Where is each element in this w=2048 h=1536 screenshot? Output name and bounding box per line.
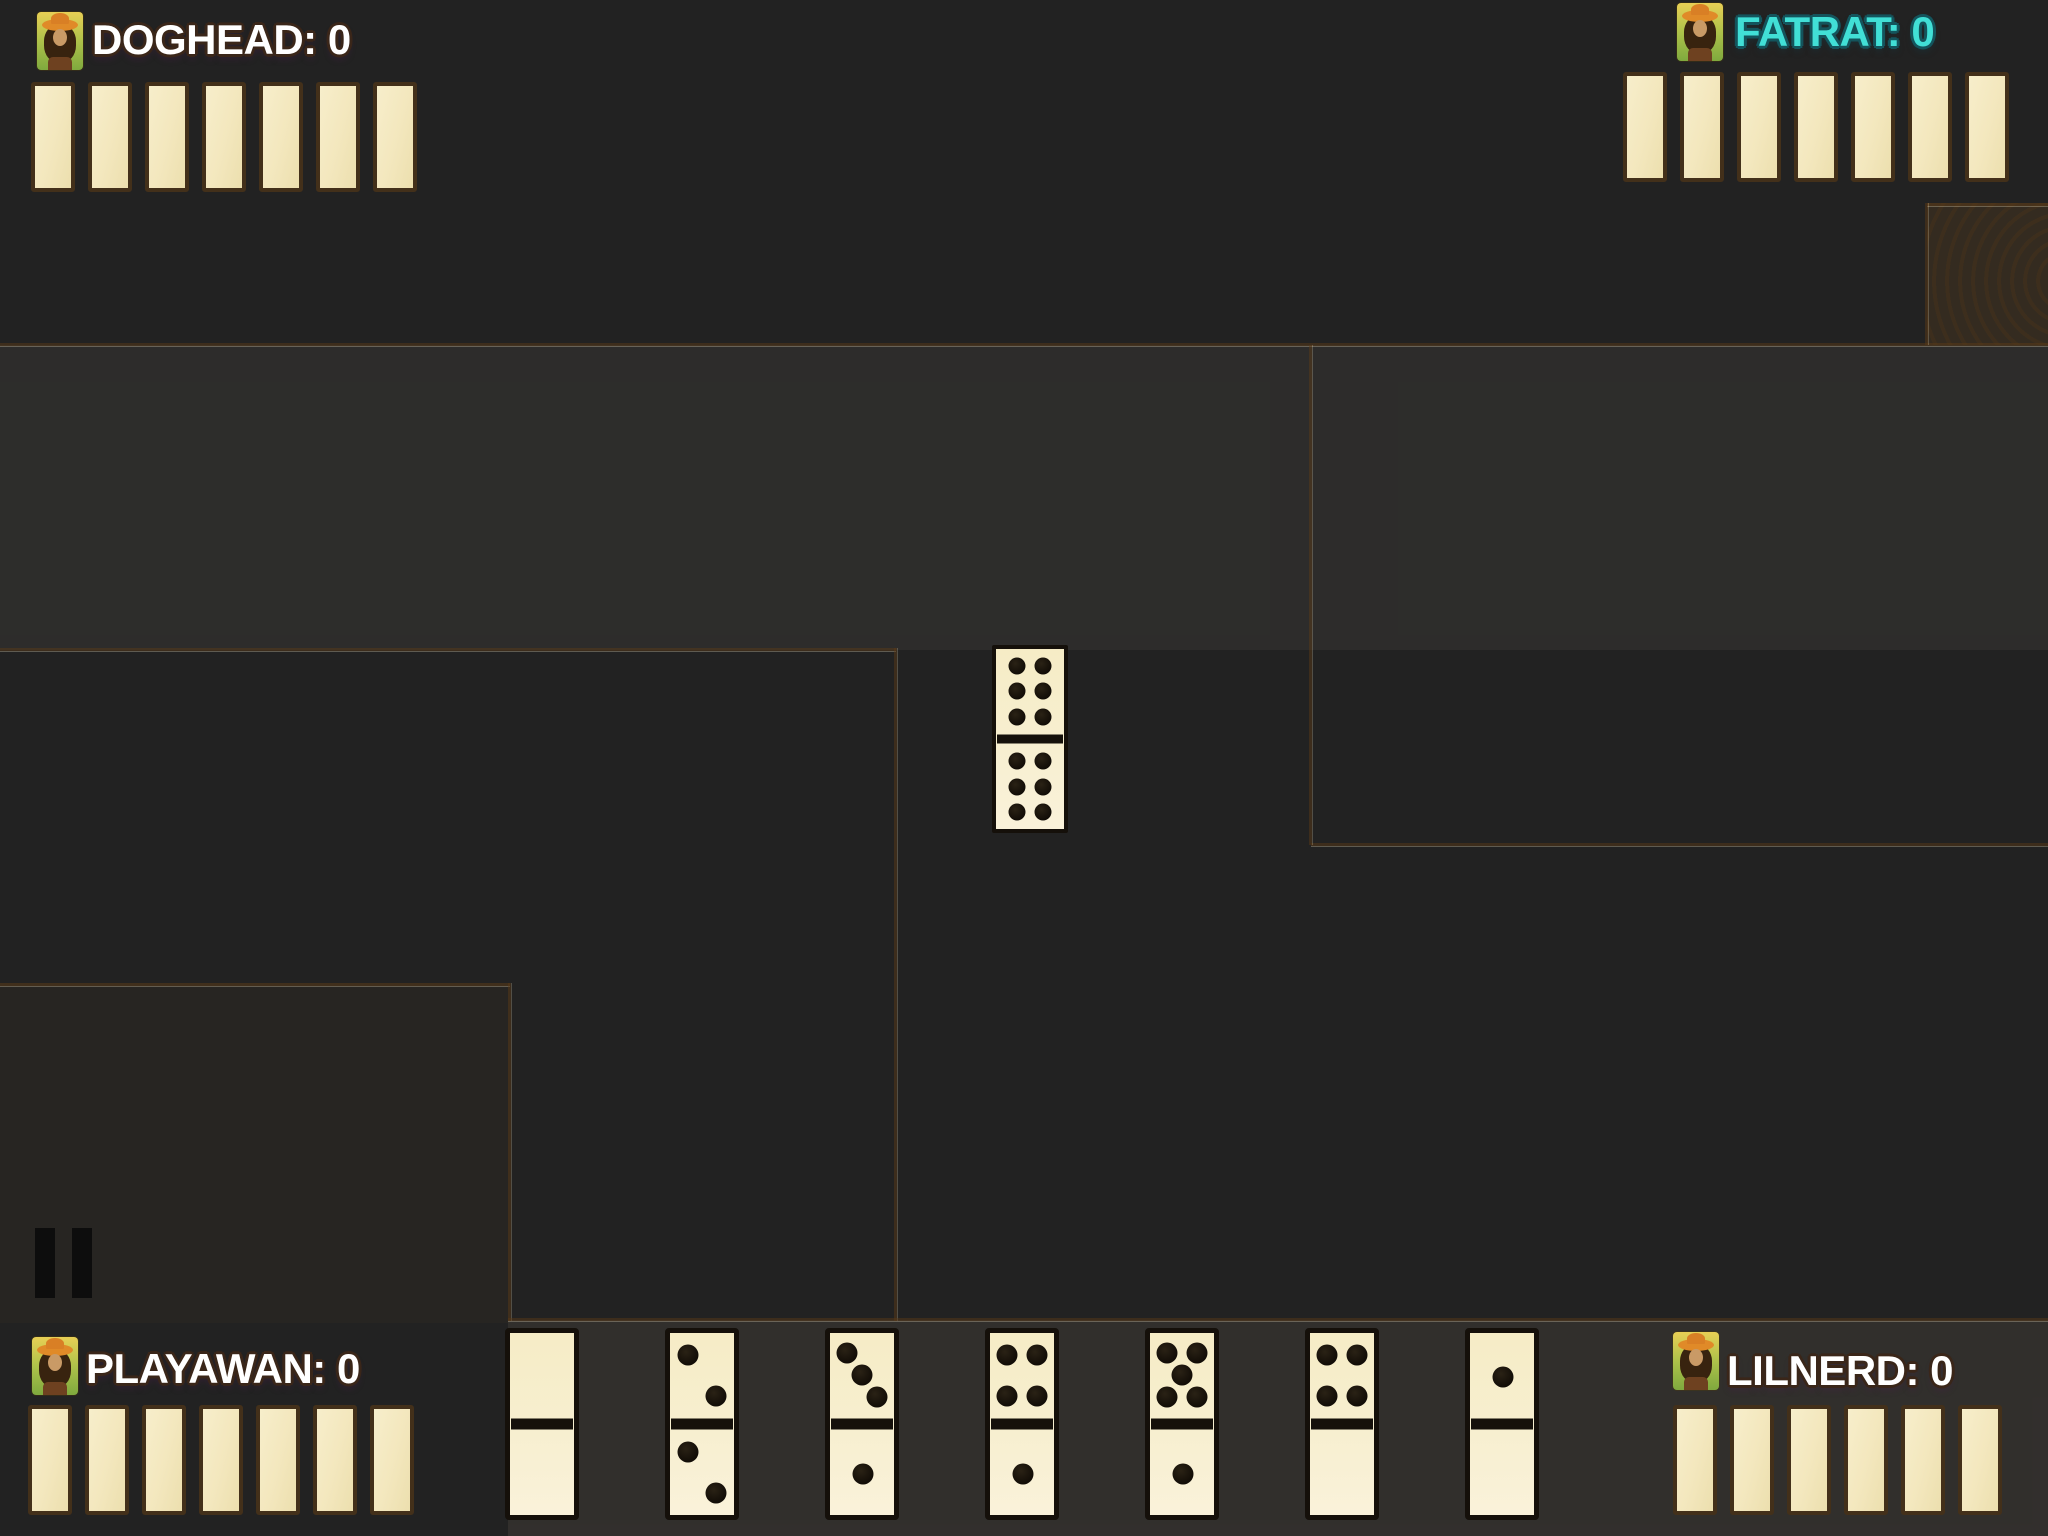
facedown-tile xyxy=(145,82,189,192)
domino-half-bottom-1 xyxy=(830,1431,894,1516)
pip xyxy=(1009,778,1026,795)
plank-seam xyxy=(0,648,896,651)
player-hand xyxy=(505,1328,1539,1520)
facedown-tile xyxy=(1851,72,1895,182)
pip xyxy=(1034,657,1051,674)
domino-half-bottom-2 xyxy=(670,1431,734,1516)
pip xyxy=(1317,1344,1338,1365)
facedown-tile xyxy=(1673,1405,1717,1515)
pip xyxy=(677,1344,698,1365)
domino-half-top-2 xyxy=(670,1333,734,1418)
pip xyxy=(1009,804,1026,821)
pip xyxy=(1187,1387,1208,1408)
facedown-tile xyxy=(313,1405,357,1515)
facedown-tile xyxy=(28,1405,72,1515)
pip xyxy=(853,1464,874,1485)
facedown-tile xyxy=(370,1405,414,1515)
domino-half-top-0 xyxy=(510,1333,574,1418)
tile-row-playawan xyxy=(28,1405,414,1515)
avatar-body xyxy=(43,1382,67,1395)
player-score-fatrat: FATRAT: 0 xyxy=(1735,8,1934,56)
pause-button[interactable] xyxy=(35,1228,92,1298)
avatar-face xyxy=(1689,1349,1703,1366)
hand-domino-3-1[interactable] xyxy=(825,1328,899,1520)
pip xyxy=(1013,1464,1034,1485)
played-domino-6-6 xyxy=(992,645,1068,833)
pip xyxy=(1317,1385,1338,1406)
hand-domino-4-0[interactable] xyxy=(1305,1328,1379,1520)
pip xyxy=(1034,753,1051,770)
player-score-doghead: DOGHEAD: 0 xyxy=(92,16,351,64)
hand-domino-5-1[interactable] xyxy=(1145,1328,1219,1520)
facedown-tile xyxy=(259,82,303,192)
plank-seam xyxy=(508,1318,2048,1321)
tile-row-fatrat xyxy=(1623,72,2009,182)
plank-seam xyxy=(894,648,897,1321)
domino-half-top-5 xyxy=(1150,1333,1214,1418)
avatar-hat-icon xyxy=(46,1338,64,1349)
facedown-tile xyxy=(1958,1405,2002,1515)
domino-divider xyxy=(1311,1419,1373,1430)
facedown-tile xyxy=(373,82,417,192)
pip xyxy=(706,1385,727,1406)
domino-half-top-6 xyxy=(996,649,1064,734)
avatar-face xyxy=(1693,20,1707,37)
player-avatar-fatrat xyxy=(1677,3,1723,61)
facedown-tile xyxy=(142,1405,186,1515)
pip xyxy=(1173,1464,1194,1485)
facedown-tile xyxy=(256,1405,300,1515)
avatar-hat-icon xyxy=(51,13,69,24)
game-table: DOGHEAD: 0 FATRAT: 0 PLAYAWAN: 0 LILNERD… xyxy=(0,0,2048,1536)
pip xyxy=(997,1385,1018,1406)
avatar-body xyxy=(48,57,72,70)
player-avatar-lilnerd xyxy=(1673,1332,1719,1390)
pip xyxy=(1009,753,1026,770)
facedown-tile xyxy=(1623,72,1667,182)
pip xyxy=(706,1483,727,1504)
player-score-lilnerd: LILNERD: 0 xyxy=(1727,1347,1953,1395)
facedown-tile xyxy=(1908,72,1952,182)
domino-half-top-1 xyxy=(1470,1333,1534,1418)
facedown-tile xyxy=(1737,72,1781,182)
pip xyxy=(1346,1385,1367,1406)
domino-divider xyxy=(1151,1419,1213,1430)
domino-divider xyxy=(1471,1419,1533,1430)
domino-half-bottom-0 xyxy=(1470,1431,1534,1516)
pip xyxy=(1346,1344,1367,1365)
facedown-tile xyxy=(1844,1405,1888,1515)
pip xyxy=(866,1387,887,1408)
avatar-face xyxy=(53,29,67,46)
player-avatar-doghead xyxy=(37,12,83,70)
pause-icon xyxy=(72,1228,92,1298)
pause-icon xyxy=(35,1228,55,1298)
player-score-playawan: PLAYAWAN: 0 xyxy=(86,1345,360,1393)
hand-domino-2-2[interactable] xyxy=(665,1328,739,1520)
domino-divider xyxy=(831,1419,893,1430)
pip xyxy=(1187,1343,1208,1364)
avatar-body xyxy=(1688,48,1712,61)
plank-seam xyxy=(1927,203,2048,206)
avatar-hat-icon xyxy=(1687,1333,1705,1344)
domino-half-bottom-0 xyxy=(510,1431,574,1516)
facedown-tile xyxy=(1730,1405,1774,1515)
facedown-tile xyxy=(316,82,360,192)
facedown-tile xyxy=(199,1405,243,1515)
facedown-tile xyxy=(202,82,246,192)
domino-half-top-3 xyxy=(830,1333,894,1418)
plank-seam xyxy=(0,983,510,986)
board-played-dominoes xyxy=(992,645,1068,833)
domino-half-top-4 xyxy=(990,1333,1054,1418)
domino-half-bottom-0 xyxy=(1310,1431,1374,1516)
facedown-tile xyxy=(85,1405,129,1515)
pip xyxy=(1009,708,1026,725)
pip xyxy=(1034,804,1051,821)
avatar-hat-icon xyxy=(1691,4,1709,15)
pip xyxy=(852,1365,873,1386)
pip xyxy=(677,1442,698,1463)
facedown-tile xyxy=(1794,72,1838,182)
pip xyxy=(1172,1365,1193,1386)
facedown-tile xyxy=(1965,72,2009,182)
hand-domino-0-0[interactable] xyxy=(505,1328,579,1520)
domino-divider xyxy=(671,1419,733,1430)
pip xyxy=(1034,778,1051,795)
plank-seam xyxy=(1309,345,1312,845)
domino-half-bottom-1 xyxy=(1150,1431,1214,1516)
facedown-tile xyxy=(88,82,132,192)
avatar-face xyxy=(48,1354,62,1371)
facedown-tile xyxy=(1787,1405,1831,1515)
domino-half-bottom-6 xyxy=(996,745,1064,830)
pip xyxy=(1009,683,1026,700)
tile-row-doghead xyxy=(31,82,417,192)
plank-seam xyxy=(508,983,511,1321)
hand-domino-4-1[interactable] xyxy=(985,1328,1059,1520)
plank-seam xyxy=(1925,203,1928,345)
plank-seam xyxy=(1311,843,2048,846)
pip xyxy=(1026,1344,1047,1365)
avatar-body xyxy=(1684,1377,1708,1390)
domino-half-top-4 xyxy=(1310,1333,1374,1418)
player-avatar-playawan xyxy=(32,1337,78,1395)
domino-divider xyxy=(511,1419,573,1430)
pip xyxy=(1156,1343,1177,1364)
pip xyxy=(1009,657,1026,674)
pip xyxy=(1034,708,1051,725)
facedown-tile xyxy=(1680,72,1724,182)
pip xyxy=(997,1344,1018,1365)
plank-seam xyxy=(0,343,2048,346)
facedown-tile xyxy=(1901,1405,1945,1515)
domino-divider xyxy=(991,1419,1053,1430)
domino-divider xyxy=(997,735,1063,744)
pip xyxy=(1493,1366,1514,1387)
pip xyxy=(1034,683,1051,700)
tile-row-lilnerd xyxy=(1673,1405,2002,1515)
pip xyxy=(1026,1385,1047,1406)
facedown-tile xyxy=(31,82,75,192)
hand-domino-1-0[interactable] xyxy=(1465,1328,1539,1520)
pip xyxy=(1156,1387,1177,1408)
pip xyxy=(837,1343,858,1364)
domino-half-bottom-1 xyxy=(990,1431,1054,1516)
